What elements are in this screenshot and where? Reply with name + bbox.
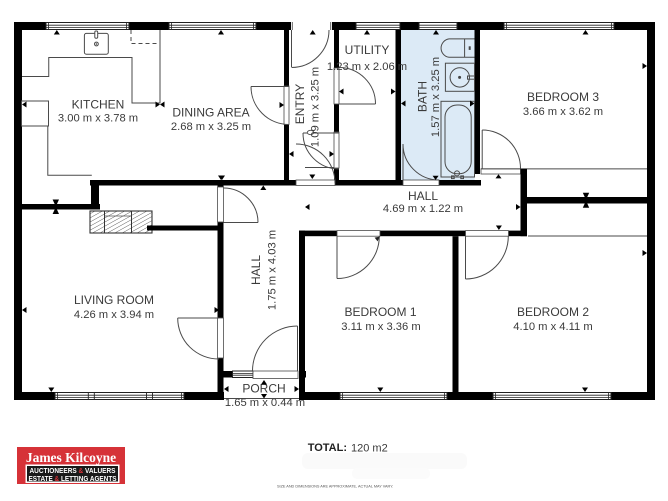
svg-text:HALL: HALL	[249, 255, 263, 285]
svg-text:3.66 m x 3.62 m: 3.66 m x 3.62 m	[523, 106, 603, 118]
svg-text:1.23 m x 2.06 m: 1.23 m x 2.06 m	[327, 61, 407, 73]
svg-text:1.75 m x 4.03 m: 1.75 m x 4.03 m	[267, 230, 279, 310]
svg-text:ENTRY: ENTRY	[293, 84, 307, 124]
svg-text:4.69 m x 1.22 m: 4.69 m x 1.22 m	[383, 203, 463, 215]
svg-text:2.68 m x 3.25 m: 2.68 m x 3.25 m	[171, 121, 251, 133]
svg-text:SIZE AND DIMENSIONS ARE APPROX: SIZE AND DIMENSIONS ARE APPROXIMATE, ACT…	[277, 485, 393, 489]
svg-text:ESTATE & LETTING AGENTS: ESTATE & LETTING AGENTS	[29, 474, 117, 483]
svg-text:BEDROOM 2: BEDROOM 2	[517, 305, 589, 319]
svg-text:DINING AREA: DINING AREA	[172, 106, 249, 120]
svg-text:TOTAL:: TOTAL:	[308, 442, 347, 454]
svg-text:UTILITY: UTILITY	[345, 43, 390, 57]
svg-text:HALL: HALL	[408, 189, 438, 203]
svg-text:3.11 m x 3.36 m: 3.11 m x 3.36 m	[341, 321, 420, 333]
svg-text:LIVING ROOM: LIVING ROOM	[74, 293, 154, 307]
svg-text:1.57 m x 3.25 m: 1.57 m x 3.25 m	[430, 57, 442, 137]
svg-text:BATH: BATH	[416, 81, 430, 112]
svg-text:4.26 m x 3.94 m: 4.26 m x 3.94 m	[74, 309, 154, 321]
svg-text:120 m2: 120 m2	[351, 443, 388, 455]
svg-text:4.10 m x 4.11 m: 4.10 m x 4.11 m	[513, 321, 592, 333]
svg-text:BEDROOM 1: BEDROOM 1	[344, 305, 416, 319]
svg-text:3.00 m x 3.78 m: 3.00 m x 3.78 m	[58, 113, 138, 125]
svg-text:BEDROOM 3: BEDROOM 3	[527, 90, 599, 104]
svg-text:1.65 m x 0.44 m: 1.65 m x 0.44 m	[225, 397, 305, 409]
svg-text:James Kilcoyne: James Kilcoyne	[26, 450, 116, 465]
svg-text:1.09 m x 3.25 m: 1.09 m x 3.25 m	[310, 67, 322, 147]
svg-text:KITCHEN: KITCHEN	[72, 98, 125, 112]
